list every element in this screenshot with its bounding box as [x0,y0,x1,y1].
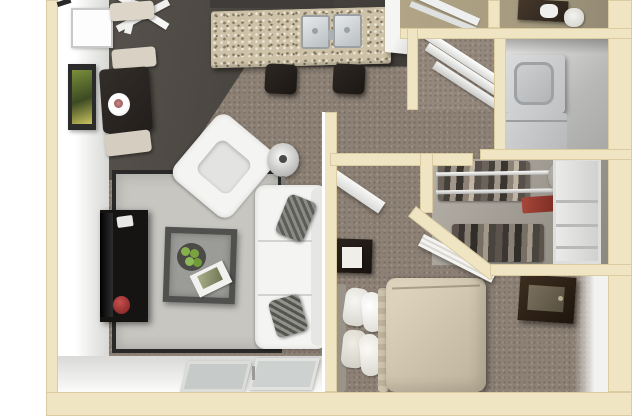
red-vase [113,296,130,314]
hanging-clothes-top [438,161,530,201]
dryer-seam [503,120,567,122]
wall-art-canvas [72,70,92,124]
wall-nook-laundry-divider [494,38,506,153]
left-wall-face [57,0,109,392]
appliance-strip [210,0,334,8]
patio-door-panel [248,358,320,390]
patio-door-panel [180,361,252,392]
sofa-cushion-line [258,240,312,242]
shelf-line [556,246,598,249]
exterior-wall-right [608,0,632,392]
laundry-shadow [502,38,608,54]
sink-drain-left [312,28,318,34]
remote [116,215,133,228]
sofa-cushion-line [258,294,312,296]
bar-stool [264,63,298,95]
wall-bathroom-divider [488,0,500,28]
shelf-line [556,200,598,203]
bed-comforter [386,278,486,392]
bathroom-sink [540,4,558,18]
sideboard-bench [109,0,154,21]
wall-nook-left [407,28,418,110]
bar-stool [332,63,366,95]
notepad [342,247,362,268]
dresser-knob [558,296,563,301]
apples [181,247,190,256]
plate-food [114,99,123,108]
toilet [564,8,584,27]
floor-plan-scene [0,0,635,416]
wall-closet-left [420,153,433,213]
sink-drain-right [344,27,350,33]
fruit-bowl [177,243,206,271]
washer-door [514,62,554,105]
exterior-wall-bottom [46,392,632,416]
wall-bathroom-bottom [400,28,632,39]
tv-screen [100,213,113,317]
window [71,8,113,48]
exterior-wall-left [46,0,58,416]
wall-closet-bottom [490,264,632,276]
dryer [503,113,567,153]
wall-laundry-bottom [480,149,632,160]
floor-lamp-finial [279,155,287,163]
shelf-line [556,224,598,227]
wall-bedroom-top [330,153,473,166]
patio-door-handle [252,366,255,380]
sink-faucet [328,30,334,40]
